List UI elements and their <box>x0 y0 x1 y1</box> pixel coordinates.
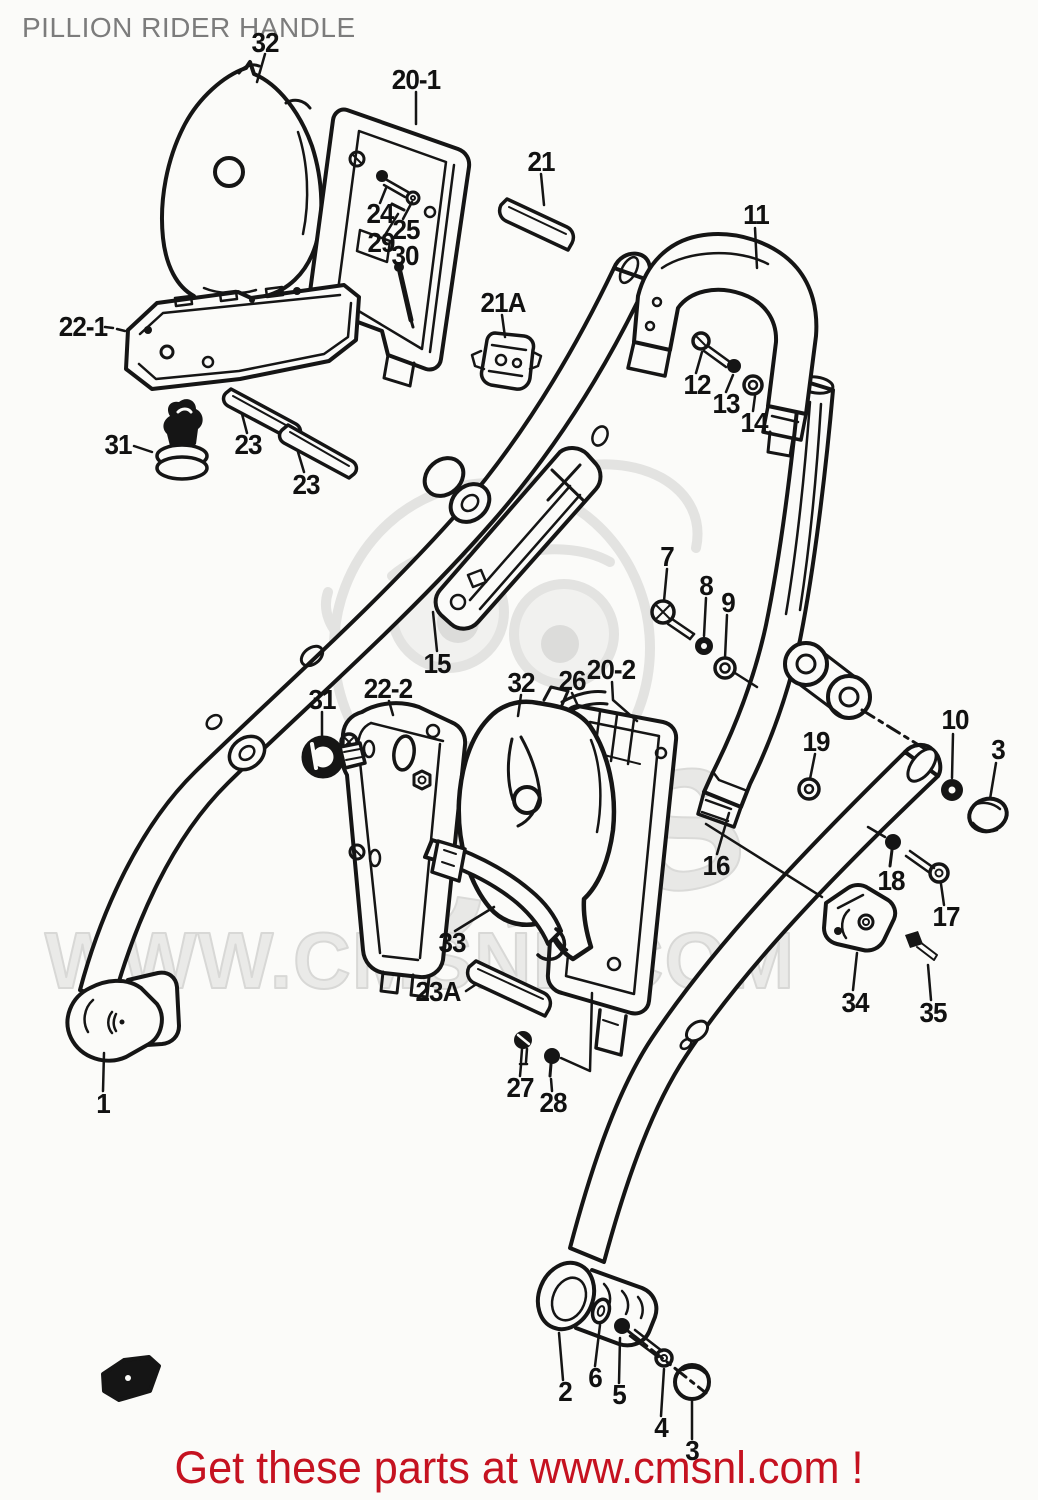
part-17-screw-head <box>930 864 948 882</box>
footer-link-text[interactable]: Get these parts at www.cmsnl.com ! <box>21 1442 1017 1494</box>
part-11-handle <box>628 234 816 456</box>
part-28-bolt <box>544 1048 560 1064</box>
fasteners-7-8-9 <box>652 601 735 678</box>
parts-fiche-page: PILLION RIDER HANDLE CMS WWW.CMSNL.COM <box>0 0 1038 1500</box>
part-21-strip <box>500 199 574 250</box>
part-18-bolt <box>885 834 901 850</box>
part-35-screw <box>905 931 937 960</box>
part-3-cap-right <box>965 794 1011 836</box>
fasteners-12-13-14 <box>693 333 762 394</box>
fasteners-17-18 <box>885 834 948 882</box>
part-19-washer <box>799 779 819 799</box>
part-10-washer <box>941 779 963 801</box>
exploded-parts-diagram: CMS WWW.CMSNL.COM <box>0 0 1038 1500</box>
part-22-1-bracket <box>126 285 359 389</box>
part-9-washer <box>715 658 735 678</box>
part-14-washer <box>744 376 762 394</box>
front-marker <box>103 1357 159 1400</box>
part-16-stay <box>698 375 870 827</box>
part-21a-bracket <box>472 333 541 389</box>
part-31-grommet-top <box>157 399 207 479</box>
part-34-bracket <box>824 885 895 951</box>
part-13-washer <box>727 359 741 373</box>
part-23-strips <box>224 389 357 478</box>
